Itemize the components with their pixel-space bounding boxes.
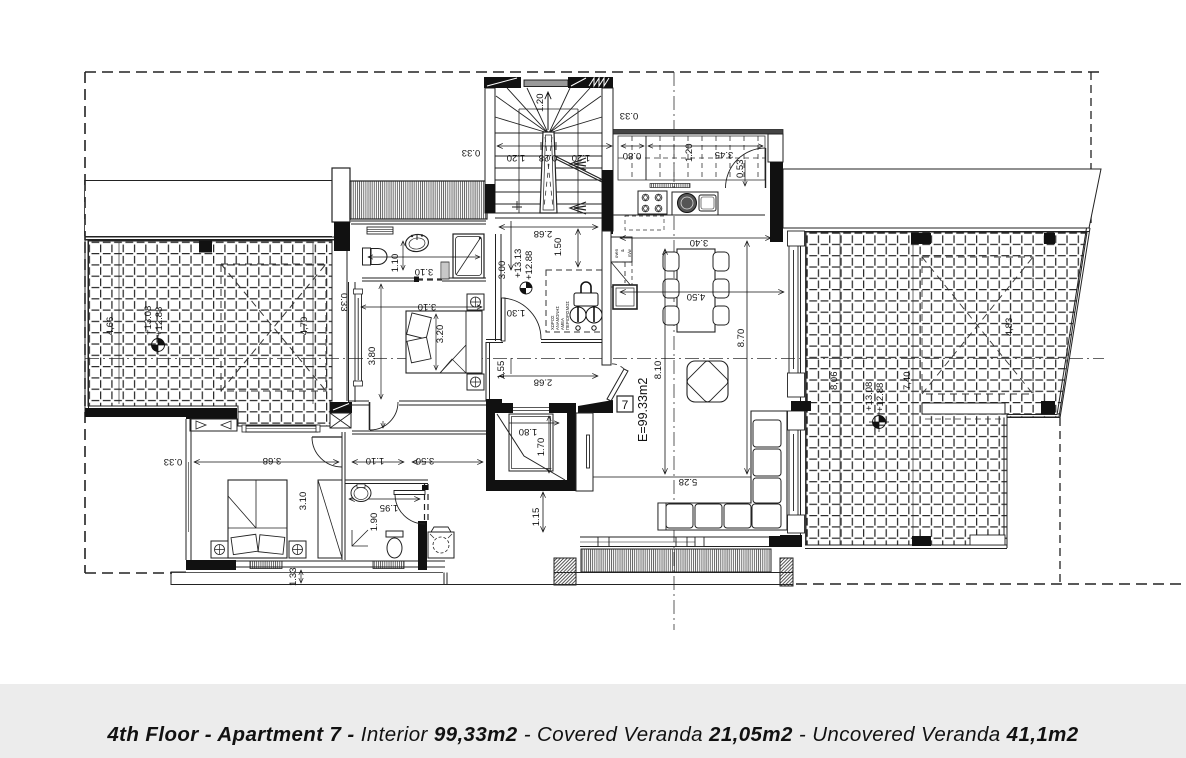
svg-text:1.70: 1.70: [536, 438, 547, 457]
svg-text:2.68: 2.68: [534, 228, 553, 239]
svg-text:+13.13: +13.13: [513, 249, 524, 278]
svg-text:7: 7: [622, 398, 629, 412]
svg-text:0.53: 0.53: [735, 160, 746, 179]
svg-text:+13.08: +13.08: [864, 382, 875, 411]
svg-text:+12.88: +12.88: [154, 307, 165, 336]
svg-text:1.80: 1.80: [519, 426, 538, 437]
svg-text:4,70: 4,70: [299, 317, 310, 336]
svg-text:E=99.33m2: E=99.33m2: [636, 378, 650, 442]
svg-text:0.33: 0.33: [620, 110, 639, 121]
svg-text:1.33: 1.33: [288, 568, 299, 587]
svg-text:3.10: 3.10: [418, 301, 437, 312]
svg-text:+13.08: +13.08: [143, 306, 154, 335]
svg-text:3.45: 3.45: [715, 149, 734, 160]
svg-text:1.15: 1.15: [531, 508, 542, 527]
svg-text:3.10: 3.10: [298, 492, 309, 511]
svg-text:oven: oven: [614, 248, 619, 258]
svg-text:4.50: 4.50: [687, 291, 706, 302]
svg-text:0.80: 0.80: [623, 150, 642, 161]
svg-text:m/w: m/w: [627, 248, 632, 257]
svg-text:7,40: 7,40: [902, 372, 913, 391]
svg-text:1.10: 1.10: [390, 254, 401, 273]
svg-text:3.50: 3.50: [416, 455, 435, 466]
svg-text:&: &: [620, 249, 625, 252]
svg-text:4,66: 4,66: [105, 317, 116, 336]
svg-text:+12.88: +12.88: [875, 383, 886, 412]
svg-text:1.20: 1.20: [507, 152, 526, 163]
svg-text:3.10: 3.10: [415, 266, 434, 277]
svg-text:0.33: 0.33: [338, 293, 349, 312]
svg-text:1.95: 1.95: [380, 502, 399, 513]
svg-text:1.50: 1.50: [553, 238, 564, 257]
svg-text:2.68: 2.68: [534, 377, 553, 388]
svg-text:0.28: 0.28: [539, 152, 558, 163]
svg-text:ΠΕΡΙΟΡΙΣΜΟΣ: ΠΕΡΙΟΡΙΣΜΟΣ: [565, 301, 570, 330]
svg-text:1.30: 1.30: [507, 307, 526, 318]
svg-text:1.10: 1.10: [366, 455, 385, 466]
svg-text:1.90: 1.90: [369, 513, 380, 532]
svg-text:5.28: 5.28: [679, 476, 698, 487]
svg-text:+12.88: +12.88: [524, 251, 535, 280]
svg-text:8,06: 8,06: [829, 372, 840, 391]
svg-text:0.33: 0.33: [462, 147, 481, 158]
svg-text:3.40: 3.40: [690, 237, 709, 248]
svg-text:8.70: 8.70: [736, 329, 747, 348]
svg-text:1.20: 1.20: [572, 152, 591, 163]
svg-text:3.00: 3.00: [497, 261, 508, 280]
svg-text:0.33: 0.33: [164, 456, 183, 467]
svg-text:4,83: 4,83: [1004, 318, 1015, 337]
svg-text:3.20: 3.20: [435, 325, 446, 344]
svg-text:1.20: 1.20: [535, 94, 546, 113]
svg-text:1.55: 1.55: [496, 361, 507, 380]
svg-text:4th Floor - Apartment 7 - Inte: 4th Floor - Apartment 7 - Interior 99,33…: [106, 723, 1078, 746]
svg-text:3.68: 3.68: [263, 455, 282, 466]
svg-text:1.20: 1.20: [684, 144, 695, 163]
svg-text:3.80: 3.80: [367, 347, 378, 366]
svg-text:8.10: 8.10: [653, 361, 664, 380]
